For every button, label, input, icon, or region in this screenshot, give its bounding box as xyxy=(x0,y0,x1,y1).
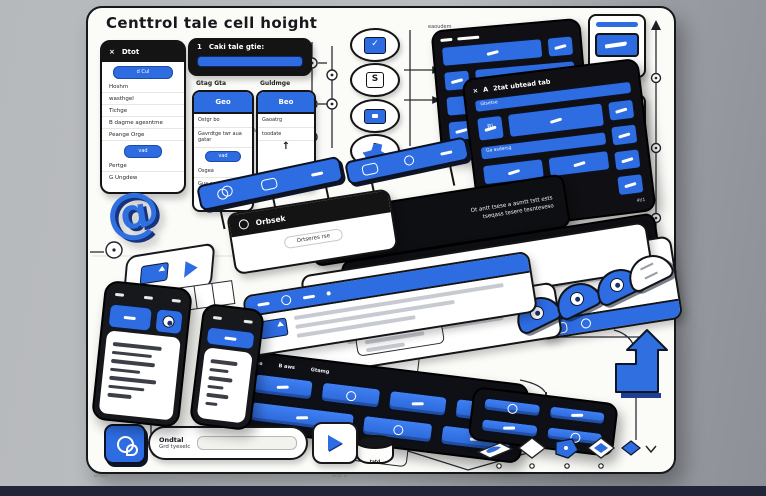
table-edge xyxy=(0,486,766,496)
icon-cell[interactable] xyxy=(613,148,641,171)
photo-of-poster: { "title": "Centtrol tale cell hoight", … xyxy=(0,0,766,496)
eye-icon xyxy=(608,276,627,295)
checkbox-icon[interactable]: ✓ xyxy=(364,37,386,54)
step-number: 1 xyxy=(197,43,202,51)
message-icon xyxy=(124,315,136,319)
detail-panel-header: × Dtot xyxy=(102,42,184,62)
record-icon xyxy=(238,219,249,230)
card-line: Gavrdtge twr aua gatar xyxy=(194,128,252,148)
caption-right: anrte tact tn eansteaer xyxy=(552,474,611,479)
orbsek-title: Orbsek xyxy=(255,213,286,227)
play-button[interactable] xyxy=(312,422,358,464)
list-item[interactable]: Peange Orge xyxy=(102,129,184,141)
search-title: Ondtal xyxy=(159,436,190,444)
dash-icon[interactable] xyxy=(311,171,323,176)
card-accent-line xyxy=(596,22,638,27)
key[interactable] xyxy=(479,417,539,439)
panel-title: 2tat ubtead tab xyxy=(493,78,551,93)
eye-icon xyxy=(568,290,587,309)
database-cylinder: tatd xyxy=(356,438,394,464)
input-bar[interactable] xyxy=(197,56,303,67)
eye-icon xyxy=(162,315,175,328)
clip-icon[interactable] xyxy=(403,155,415,167)
search-bar: Ondtal Grd tyeselc xyxy=(148,426,308,460)
stream-label: eaoudem xyxy=(428,24,452,30)
card-header[interactable]: Geo xyxy=(194,92,252,114)
close-icon[interactable]: × xyxy=(109,48,115,56)
phone-button-eye[interactable] xyxy=(154,308,184,335)
card-line: toodate xyxy=(258,128,314,142)
detail-top-pill[interactable]: d Cul xyxy=(113,66,173,79)
menu-dash-icon xyxy=(457,36,479,41)
cylinder-label: tatd xyxy=(370,460,381,465)
cell-panel-title: Caki tale gtie: xyxy=(209,43,264,51)
play-icon xyxy=(328,435,342,451)
search-subtitle: Grd tyeselc xyxy=(159,444,190,451)
pen-icon xyxy=(640,263,658,280)
key[interactable] xyxy=(544,425,604,447)
card-line: Ostgr bo xyxy=(194,114,252,128)
list-item[interactable]: wasthgel xyxy=(102,93,184,105)
grid-cell[interactable] xyxy=(547,150,610,177)
user-icon[interactable] xyxy=(280,294,291,305)
at-symbol: @ xyxy=(102,182,165,245)
detail-panel: × Dtot d Cul Hoshm wasthgel Tichge B dag… xyxy=(100,40,186,194)
phone-button-message[interactable] xyxy=(108,303,153,331)
card-pill[interactable]: vad xyxy=(205,151,241,162)
caption-center: etot a xyxy=(332,474,347,479)
detail-mid-pill[interactable]: vad xyxy=(124,145,162,158)
list-item[interactable]: Pertge xyxy=(102,160,184,172)
list-item[interactable]: B dagme agesntme xyxy=(102,117,184,129)
detail-panel-title: Dtot xyxy=(122,48,139,56)
dash-icon[interactable] xyxy=(257,301,269,306)
search-input[interactable] xyxy=(197,436,297,450)
phone-mockup-large xyxy=(91,280,193,428)
flag-icon xyxy=(184,259,198,277)
chain-icon[interactable] xyxy=(216,187,229,200)
panel-prefix: A xyxy=(483,85,489,94)
icon-cell[interactable] xyxy=(610,123,638,146)
key-label: B aws xyxy=(278,363,295,371)
dash-icon xyxy=(224,336,236,340)
list-item[interactable]: Tichge xyxy=(102,105,184,117)
grid-cell[interactable]: Bl xyxy=(476,115,505,142)
mail-icon[interactable] xyxy=(580,318,591,329)
key[interactable] xyxy=(547,404,607,426)
phone-icon xyxy=(364,109,386,124)
close-icon[interactable]: × xyxy=(472,86,478,95)
badge-phone xyxy=(350,99,400,133)
page-title: Centtrol tale cell hoight xyxy=(106,14,317,32)
image-tile[interactable] xyxy=(140,262,169,285)
badge-letter-s: S xyxy=(350,63,400,97)
phone-list xyxy=(99,330,181,420)
column-label-right: Guldmge xyxy=(260,80,290,87)
list-item[interactable]: Hoshm xyxy=(102,81,184,93)
badge-checkbox: ✓ xyxy=(350,28,400,62)
monogram-icon xyxy=(117,436,134,453)
corner-label: 4tl1 xyxy=(636,198,645,204)
card-line: Gaoatrg xyxy=(258,114,314,128)
card-icon[interactable] xyxy=(261,177,279,191)
caption-left: orton xyxy=(94,474,107,479)
key[interactable] xyxy=(386,389,449,418)
dash-icon[interactable] xyxy=(440,150,452,155)
letter-s-icon: S xyxy=(366,72,384,88)
key[interactable] xyxy=(482,396,542,418)
dot-icon[interactable] xyxy=(326,291,331,296)
grid-cell[interactable] xyxy=(547,35,575,57)
card-header[interactable]: Beo xyxy=(258,92,314,114)
key[interactable] xyxy=(319,380,382,409)
up-arrow-icon: ↑ xyxy=(258,141,314,152)
monogram-button[interactable] xyxy=(104,424,146,464)
grid-cell[interactable] xyxy=(441,38,543,67)
key-label: Gtamg xyxy=(310,367,329,375)
phone-button[interactable] xyxy=(206,326,256,350)
orbsek-tag[interactable]: Ortseres rse xyxy=(283,228,344,249)
column-label-left: Gtag Gta xyxy=(196,80,226,87)
cell-panel-header: 1 Caki tale gtie: xyxy=(188,38,312,76)
mail-icon[interactable] xyxy=(361,162,379,176)
dash-icon[interactable] xyxy=(303,294,315,299)
phone-list xyxy=(197,347,253,423)
key[interactable] xyxy=(252,372,315,401)
icon-cell[interactable] xyxy=(616,173,644,196)
button-preview[interactable] xyxy=(595,33,639,57)
menu-dash-icon xyxy=(440,38,452,42)
icon-cell[interactable] xyxy=(607,99,635,122)
